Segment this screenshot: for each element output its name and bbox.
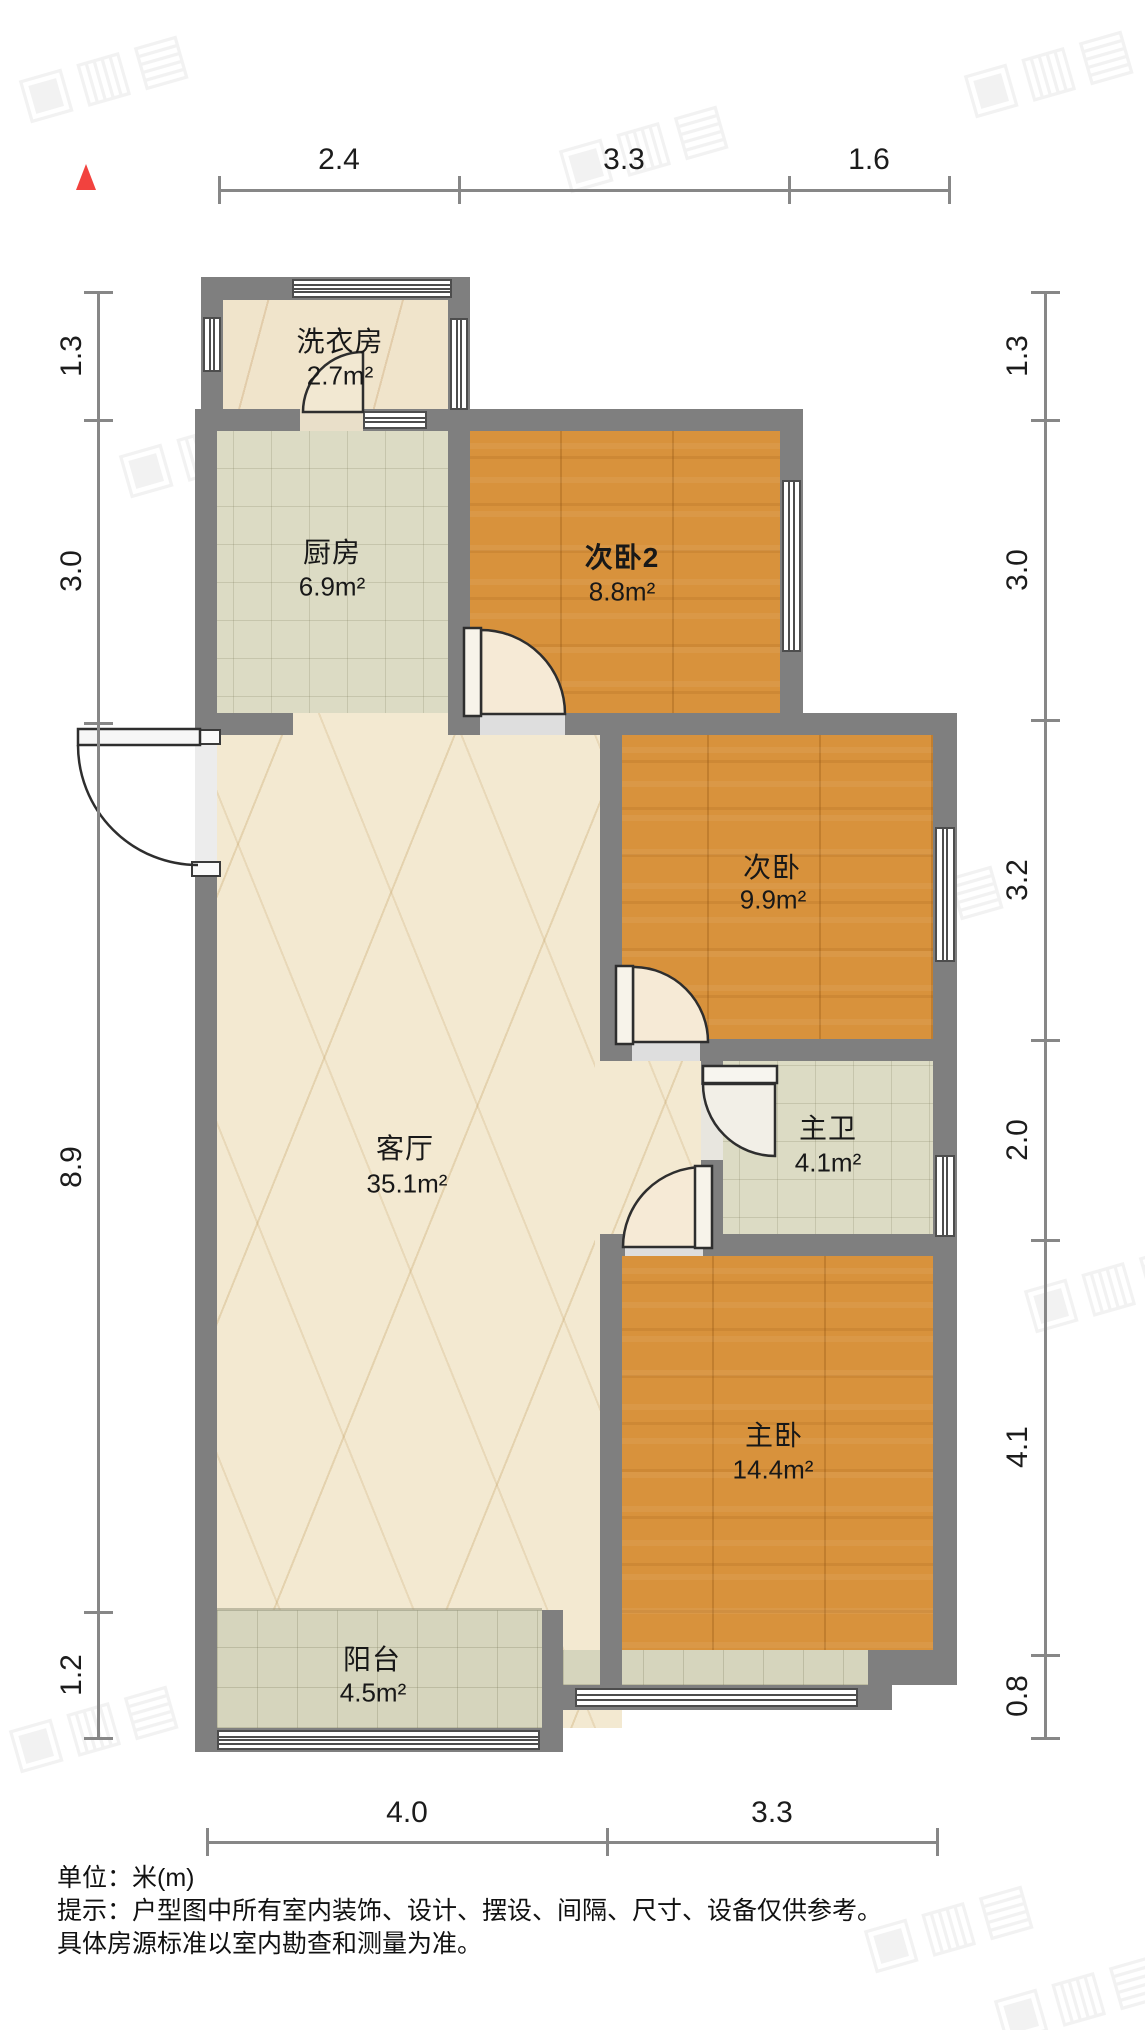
dim-right-6: 0.8 [1001,1675,1035,1717]
dim-left-2: 3.0 [55,550,89,592]
dim-left-4: 1.2 [55,1654,89,1696]
dim-left-3: 8.9 [55,1146,89,1188]
footer-disclaimer: 单位：米(m) 提示：户型图中所有室内装饰、设计、摆设、间隔、尺寸、设备仅供参考… [57,1862,882,1961]
dim-left-1: 1.3 [55,335,89,377]
dim-top-2: 3.3 [603,143,645,177]
room-name-laundry: 洗衣房 [296,320,383,360]
room-area-kitchen: 6.9m² [299,572,365,603]
master-bedroom-door-arc [623,1167,703,1247]
dim-bottom-2: 3.3 [751,1796,793,1830]
dim-right-3: 3.2 [1001,859,1035,901]
door-layer [0,0,1145,2030]
floorplan-canvas: ▣▥▤ ▣▥▤ ▣▥▤ ▣▥▤ ▣▥▤ ▣▥▤ ▣▥▤ ▣▥▤ ▣▥▤ ▣▥▤ [0,0,1145,2030]
master-bath-door-leaf [703,1066,777,1083]
room-name-living: 客厅 [376,1127,434,1167]
room-name-master-bedroom: 主卧 [745,1414,803,1454]
footer-notice-line2: 具体房源标准以室内勘查和测量为准。 [57,1928,882,1961]
room-area-bedroom2: 9.9m² [740,885,806,916]
dim-right-2: 3.0 [1001,549,1035,591]
bedroom2b-door-leaf [464,628,481,716]
room-area-laundry: 2.7m² [307,361,373,392]
room-area-master-bath: 4.1m² [795,1148,861,1179]
footer-unit-line: 单位：米(m) [57,1862,882,1895]
bedroom2-door-arc [633,967,708,1042]
room-name-balcony: 阳台 [343,1638,401,1678]
room-area-living: 35.1m² [367,1169,448,1200]
room-area-balcony: 4.5m² [340,1678,406,1709]
master-bath-door-arc [703,1084,775,1156]
footer-notice-line1: 提示：户型图中所有室内装饰、设计、摆设、间隔、尺寸、设备仅供参考。 [57,1895,882,1928]
dim-right-4: 2.0 [1001,1119,1035,1161]
room-name-bedroom2b: 次卧2 [585,536,660,576]
dim-top-1: 2.4 [318,143,360,177]
bedroom2-door-leaf [616,966,633,1044]
room-name-kitchen: 厨房 [303,531,361,571]
room-area-master-bedroom: 14.4m² [733,1455,814,1486]
room-name-master-bath: 主卫 [799,1107,857,1147]
entry-door-arc [78,745,198,865]
bedroom2b-door-arc [481,630,565,714]
room-area-bedroom2b: 8.8m² [589,577,655,608]
room-name-bedroom2: 次卧 [743,846,801,886]
dim-top-3: 1.6 [848,143,890,177]
dim-bottom-1: 4.0 [386,1796,428,1830]
dim-right-1: 1.3 [1001,335,1035,377]
master-bedroom-door-leaf [695,1166,712,1248]
dim-right-5: 4.1 [1001,1426,1035,1468]
